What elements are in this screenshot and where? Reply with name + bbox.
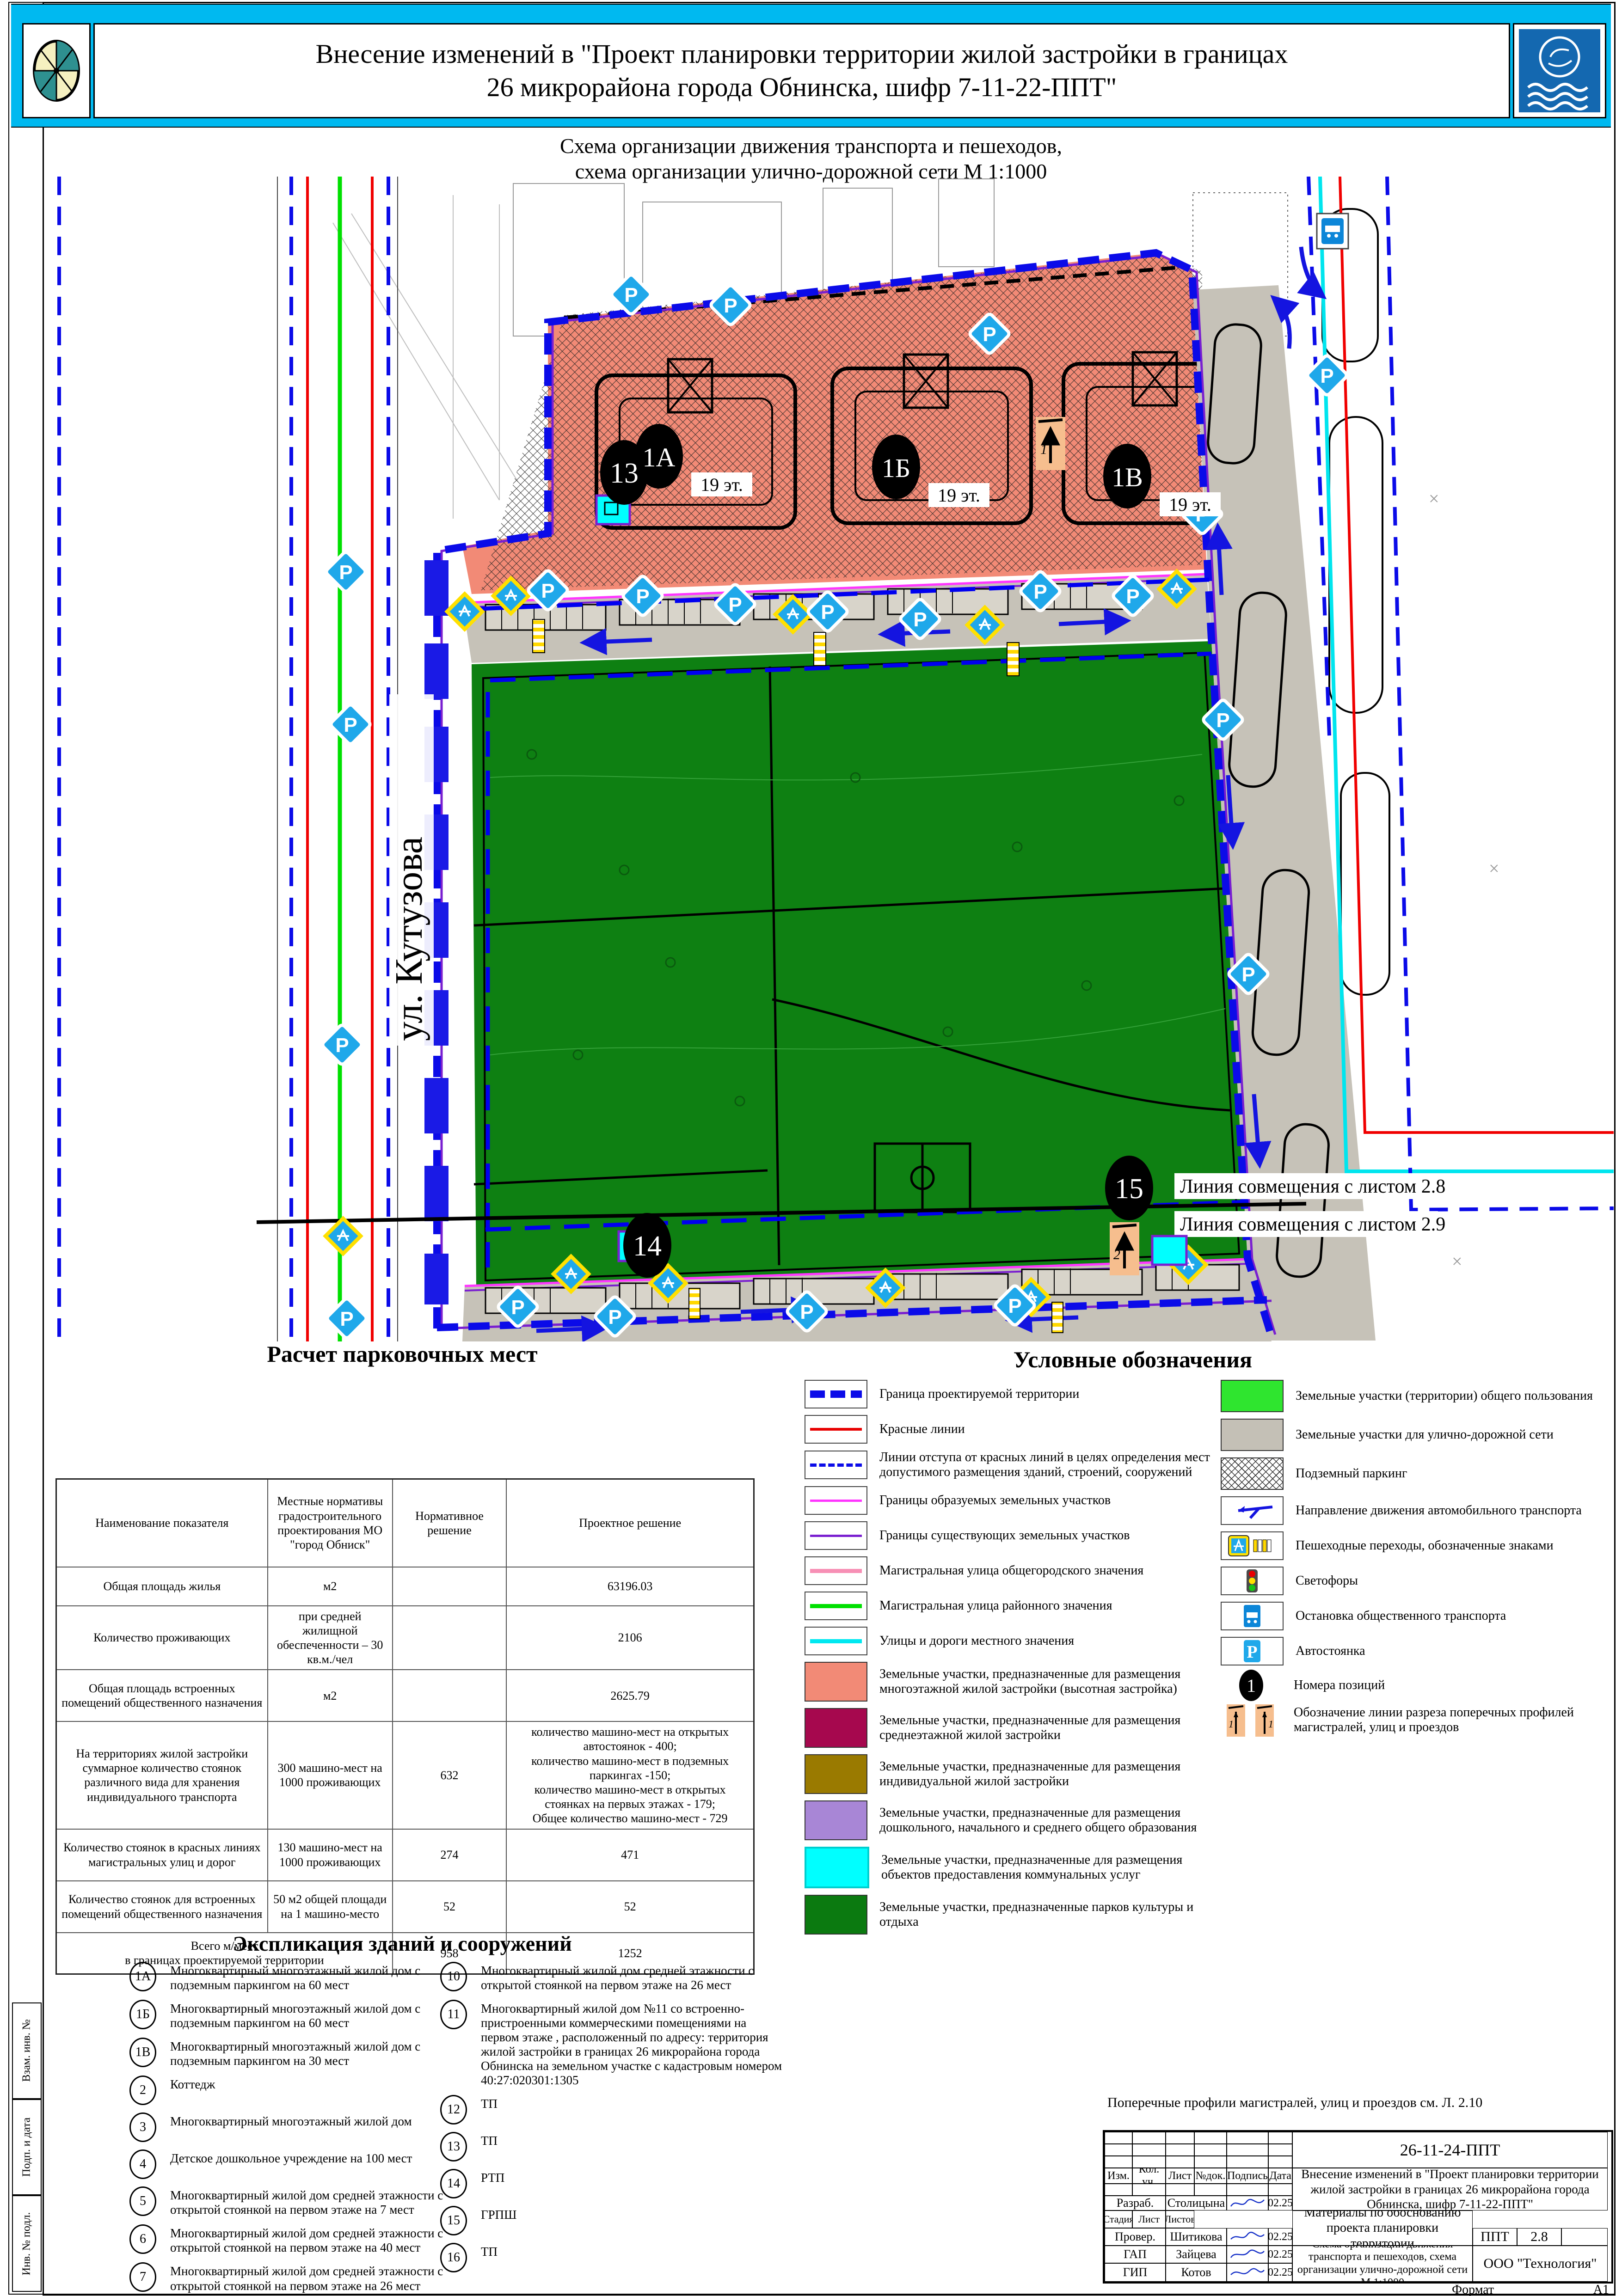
- brightgreen-fill-icon: [1221, 1380, 1284, 1412]
- parking-table: Наименование показателя Местные норматив…: [55, 1478, 755, 1975]
- list-item: 7Многоквартирный жилой дом средней этажн…: [129, 2262, 481, 2293]
- boundary-line-icon: [805, 1380, 867, 1408]
- legend-item: Земельные участки (территории) общего по…: [1221, 1380, 1614, 1412]
- legend-item: Магистральная улица районного значения: [805, 1592, 1211, 1620]
- legend-item: Земельные участки для улично-дорожной се…: [1221, 1419, 1614, 1451]
- list-item: 11Многоквартирный жилой дом №11 со встро…: [440, 2000, 783, 2088]
- salmon-fill-icon: [805, 1662, 867, 1702]
- table-row: На территориях жилой застройки суммарное…: [56, 1721, 754, 1829]
- svg-text:P: P: [624, 284, 638, 306]
- svg-text:P: P: [1033, 581, 1047, 603]
- street-kutuzova-lines: [277, 177, 398, 1341]
- svg-text:×: ×: [1429, 488, 1439, 509]
- parking-sign-icon: P: [1221, 1637, 1284, 1665]
- red-line-icon: [805, 1415, 867, 1444]
- stamp-project-title: Внесение изменений в "Проект планировки …: [1292, 2168, 1608, 2210]
- legend-item: Улицы и дороги местного значения: [805, 1627, 1211, 1655]
- legend-right-column: Земельные участки (территории) общего по…: [1221, 1380, 1614, 1741]
- col-header: Местные нормативы градостроительного про…: [268, 1479, 393, 1567]
- table-header-row: Наименование показателя Местные норматив…: [56, 1479, 754, 1567]
- legend-item: Светофоры: [1221, 1567, 1614, 1595]
- col-header: Наименование показателя: [56, 1479, 268, 1567]
- svg-text:P: P: [1216, 709, 1229, 732]
- position-15: 15: [1105, 1156, 1153, 1220]
- legend-item: Направление движения автомобильного тран…: [1221, 1496, 1614, 1525]
- position-14: 14: [623, 1213, 671, 1278]
- cross-profiles-note: Поперечные профили магистралей, улиц и п…: [1107, 2095, 1588, 2111]
- legend-item: Красные линии: [805, 1415, 1211, 1444]
- table-row: Общая площадь жилья м2 63196.03: [56, 1567, 754, 1606]
- list-item: 6Многоквартирный жилой дом средней этажн…: [129, 2224, 481, 2255]
- svg-text:19 эт.: 19 эт.: [938, 485, 980, 506]
- svg-text:P: P: [821, 601, 834, 624]
- list-item: 2Коттедж: [129, 2076, 481, 2105]
- svg-text:P: P: [340, 1308, 353, 1330]
- sheets-total: [1561, 2228, 1608, 2246]
- svg-text:1В: 1В: [1112, 462, 1143, 492]
- crosswalk-sign-icon: [1221, 1531, 1284, 1560]
- stamp-col-header: Дата: [1268, 2168, 1292, 2184]
- sheet-title-line1: Внесение изменений в "Проект планировки …: [316, 37, 1288, 71]
- stamp-col-header: Кол. уч.: [1132, 2168, 1166, 2184]
- drawing-sheet: Внесение изменений в "Проект планировки …: [0, 0, 1622, 2296]
- table-row: Общая площадь встроенных помещений общес…: [56, 1670, 754, 1721]
- svg-text:1Б: 1Б: [882, 453, 910, 483]
- col-header: Нормативное решение: [393, 1479, 506, 1567]
- list-item: 14РТП: [440, 2169, 783, 2198]
- pink-line-icon: [805, 1556, 867, 1585]
- company-logo: [1513, 23, 1606, 118]
- legend-left-column: Граница проектируемой территории Красные…: [805, 1380, 1211, 1941]
- stamp-col-header: №док.: [1194, 2168, 1227, 2184]
- frame-label: Взам. инв. №: [12, 2002, 42, 2099]
- svg-text:ул. Кутузова: ул. Кутузова: [387, 837, 430, 1041]
- match-line-label-top: Линия совмещения с листом 2.8: [1180, 1176, 1445, 1197]
- cyan-line-icon: [805, 1627, 867, 1655]
- stamp-section-label: Материалы по обоснованию проекта планиро…: [1292, 2210, 1473, 2246]
- table-row: Количество стоянок в красных линиях маги…: [56, 1829, 754, 1881]
- list-item: 3Многоквартирный многоэтажный жилой дом: [129, 2112, 481, 2142]
- position-number-icon: 1: [1221, 1672, 1282, 1699]
- legend-item: Земельные участки, предназначенные парко…: [805, 1895, 1211, 1935]
- table-row: Количество проживающих при средней жилищ…: [56, 1606, 754, 1670]
- crosshatch-icon: [1221, 1457, 1284, 1490]
- title-block: 26-11-24-ППТ Изм. Кол. уч. Лист №док. По…: [1103, 2130, 1613, 2284]
- darkgreen-fill-icon: [805, 1895, 867, 1935]
- legend-item: Магистральная улица общегородского значе…: [805, 1556, 1211, 1585]
- stamp-col-header: Лист: [1166, 2168, 1194, 2184]
- svg-text:15: 15: [1115, 1173, 1143, 1205]
- gray-fill-icon: [1221, 1419, 1284, 1451]
- legend-item: Граница проектируемой территории: [805, 1380, 1211, 1408]
- list-item: 1АМногоквартирный многоэтажный жилой дом…: [129, 1962, 481, 1992]
- svg-text:P: P: [511, 1296, 524, 1319]
- frame-vertical-labels: Взам. инв. № Подп. и дата Инв. № подл.: [12, 2002, 42, 2292]
- svg-text:P: P: [608, 1306, 621, 1329]
- signature: [1227, 2196, 1268, 2210]
- legend-item: Границы образуемых земельных участков: [805, 1486, 1211, 1515]
- stage-value: ППТ: [1473, 2228, 1517, 2246]
- legend-item: Земельные участки, предназначенные для р…: [805, 1662, 1211, 1702]
- svg-text:×: ×: [1489, 858, 1499, 879]
- direction-arrow-icon: [1221, 1496, 1284, 1525]
- signature: [1227, 2228, 1268, 2246]
- svg-text:P: P: [335, 1034, 349, 1057]
- list-item: 16ТП: [440, 2243, 783, 2272]
- compass-logo: [22, 23, 91, 118]
- frame-label: Подп. и дата: [12, 2099, 42, 2196]
- green-line-icon: [805, 1592, 867, 1620]
- svg-text:P: P: [636, 585, 649, 608]
- signature: [1227, 2246, 1268, 2263]
- format-label: Формат А1: [1452, 2283, 1609, 2296]
- company-logo-icon: [1518, 28, 1601, 113]
- svg-text:P: P: [800, 1301, 813, 1323]
- section-cut-icon: 11: [1221, 1707, 1282, 1733]
- svg-text:P: P: [983, 323, 996, 346]
- gold-fill-icon: [805, 1754, 867, 1794]
- legend-item: Земельные участки, предназначенные для р…: [805, 1754, 1211, 1794]
- compass-icon: [29, 34, 84, 108]
- sheet-number: 2.8: [1517, 2228, 1561, 2246]
- list-item: 15ГРПШ: [440, 2206, 783, 2235]
- stamp-sheet-title: Схема организации движения транспорта и …: [1292, 2246, 1473, 2282]
- signature: [1227, 2282, 1268, 2283]
- svg-text:P: P: [339, 561, 352, 584]
- svg-text:14: 14: [633, 1231, 662, 1262]
- svg-text:P: P: [1320, 365, 1333, 387]
- svg-text:1: 1: [1040, 442, 1047, 457]
- svg-text:P: P: [724, 294, 737, 317]
- list-item: 5Многоквартирный жилой дом средней этажн…: [129, 2186, 481, 2217]
- legend-item: Остановка общественного транспорта: [1221, 1602, 1614, 1630]
- legend-item: 1Номера позиций: [1221, 1672, 1614, 1699]
- svg-text:1: 1: [1268, 1718, 1273, 1730]
- list-item: 12ТП: [440, 2095, 783, 2125]
- svg-text:P: P: [541, 580, 554, 602]
- setback-line-icon: [805, 1451, 867, 1479]
- list-item: 1БМногоквартирный многоэтажный жилой дом…: [129, 2000, 481, 2030]
- stamp-col-header: Подпись: [1227, 2168, 1268, 2184]
- magenta-line-icon: [805, 1486, 867, 1515]
- document-number: 26-11-24-ППТ: [1292, 2132, 1608, 2168]
- legend-item: Линии отступа от красных линий в целях о…: [805, 1450, 1211, 1480]
- explication-right-column: 10Многоквартирный жилой дом средней этаж…: [440, 1962, 783, 2272]
- svg-text:1А: 1А: [643, 442, 676, 472]
- sheet-title: Внесение изменений в "Проект планировки …: [93, 23, 1510, 118]
- legend-item: Земельные участки, предназначенные для р…: [805, 1800, 1211, 1840]
- map-subtitle-line1: Схема организации движения транспорта и …: [349, 133, 1273, 159]
- underground-parking-hatch: [481, 255, 1202, 590]
- legend-item: Земельные участки, предназначенные для р…: [805, 1708, 1211, 1748]
- svg-text:P: P: [344, 714, 357, 736]
- svg-text:2: 2: [1113, 1247, 1120, 1262]
- svg-text:19 эт.: 19 эт.: [1169, 494, 1211, 515]
- legend-item: Земельные участки, предназначенные для р…: [805, 1847, 1211, 1888]
- lilac-fill-icon: [805, 1800, 867, 1840]
- cyan-fill-icon: [805, 1847, 869, 1888]
- explication-left-column: 1АМногоквартирный многоэтажный жилой дом…: [129, 1962, 481, 2296]
- table-row: Количество стоянок для встроенных помеще…: [56, 1881, 754, 1933]
- frame-label: Инв. № подл.: [12, 2195, 42, 2292]
- match-line-label-bottom: Линия совмещения с листом 2.9: [1180, 1214, 1445, 1235]
- sheet-title-line2: 26 микрорайона города Обнинска, шифр 7-1…: [487, 71, 1117, 104]
- svg-text:P: P: [913, 608, 927, 631]
- street-label: ул. Кутузова: [387, 694, 434, 1046]
- territory-plan-map[interactable]: ××× ×××: [46, 177, 1614, 1341]
- legend-item: 11Обозначение линии разреза поперечных п…: [1221, 1705, 1614, 1735]
- svg-text:19 эт.: 19 эт.: [700, 474, 743, 495]
- legend-item: Границы существующих земельных участков: [805, 1521, 1211, 1550]
- stamp-col-header: Изм.: [1105, 2168, 1132, 2184]
- list-item: 4Детское дошкольное учреждение на 100 ме…: [129, 2149, 481, 2179]
- explication-title: Экспликация зданий и сооружений: [139, 1931, 666, 1956]
- bus-stop-sign-icon: [1221, 1602, 1284, 1630]
- svg-text:P: P: [1247, 1642, 1257, 1662]
- traffic-light-icon: [1221, 1567, 1284, 1595]
- bus-stop-icon: [1317, 214, 1348, 249]
- list-item: 1ВМногоквартирный многоэтажный жилой дом…: [129, 2038, 481, 2068]
- col-header: Проектное решение: [506, 1479, 754, 1567]
- svg-text:P: P: [1126, 585, 1139, 608]
- legend-title: Условные обозначения: [925, 1346, 1341, 1373]
- list-item: 13ТП: [440, 2132, 783, 2161]
- svg-text:P: P: [1241, 963, 1255, 986]
- purple-line-icon: [805, 1521, 867, 1550]
- svg-text:P: P: [1008, 1295, 1021, 1317]
- list-item: 10Многоквартирный жилой дом средней этаж…: [440, 1962, 783, 1992]
- svg-text:×: ×: [1452, 1251, 1462, 1272]
- svg-text:1: 1: [1229, 1718, 1234, 1730]
- crimson-fill-icon: [805, 1708, 867, 1748]
- right-corridor-lines: [1309, 177, 1614, 1210]
- legend-item: Пешеходные переходы, обозначенные знакам…: [1221, 1531, 1614, 1560]
- parking-table-title: Расчет парковочных мест: [139, 1341, 666, 1367]
- company-name: ООО "Технология": [1473, 2246, 1608, 2282]
- legend-item: PАвтостоянка: [1221, 1637, 1614, 1665]
- signature: [1227, 2263, 1268, 2282]
- svg-text:13: 13: [610, 458, 639, 489]
- svg-text:P: P: [728, 594, 742, 616]
- svg-text:1: 1: [1247, 1675, 1256, 1696]
- legend-item: Подземный паркинг: [1221, 1457, 1614, 1490]
